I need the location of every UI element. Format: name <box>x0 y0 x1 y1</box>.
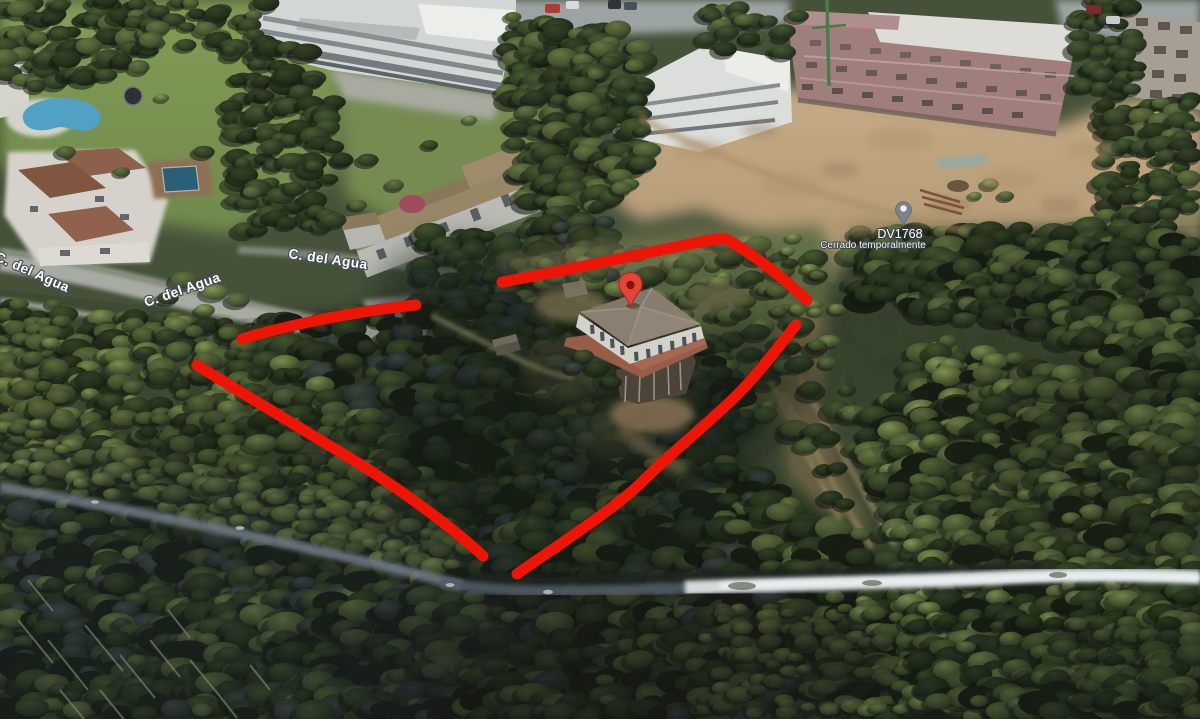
svg-text:Cerrado temporalmente: Cerrado temporalmente <box>820 240 926 251</box>
svg-text:DV1768: DV1768 <box>877 227 922 241</box>
